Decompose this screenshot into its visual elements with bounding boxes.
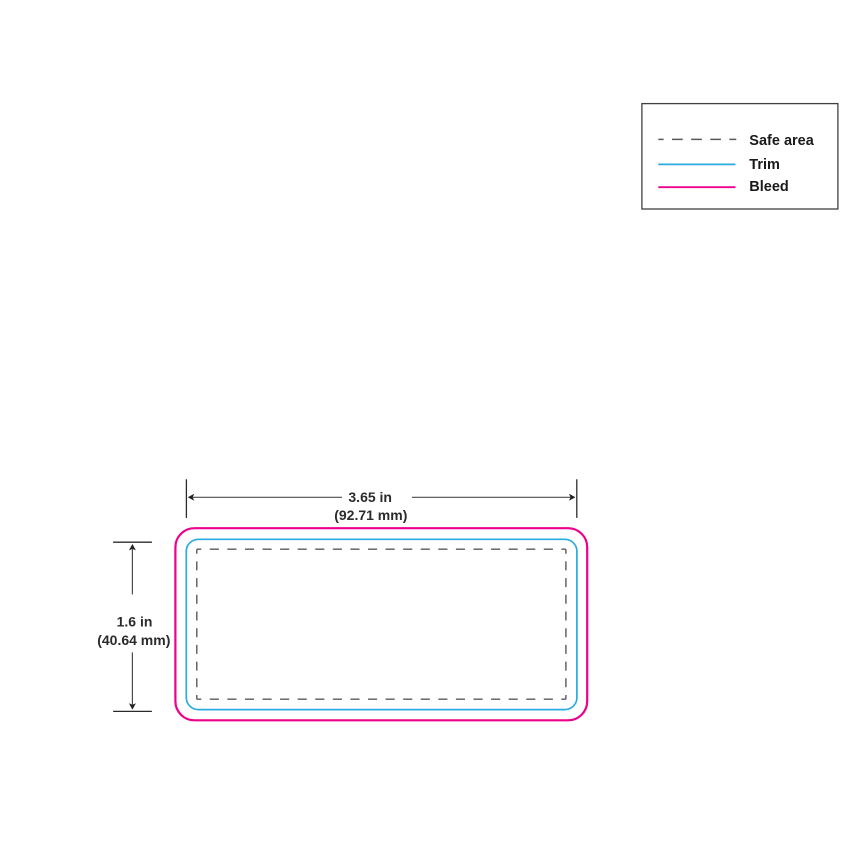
svg-text:(40.64 mm): (40.64 mm) bbox=[97, 632, 170, 648]
svg-text:(92.71 mm): (92.71 mm) bbox=[334, 507, 407, 523]
svg-text:1.6 in: 1.6 in bbox=[117, 614, 153, 630]
svg-text:3.65 in: 3.65 in bbox=[348, 489, 392, 505]
svg-text:Bleed: Bleed bbox=[749, 179, 789, 195]
svg-text:Safe area: Safe area bbox=[749, 133, 814, 149]
svg-text:Trim: Trim bbox=[749, 157, 780, 173]
